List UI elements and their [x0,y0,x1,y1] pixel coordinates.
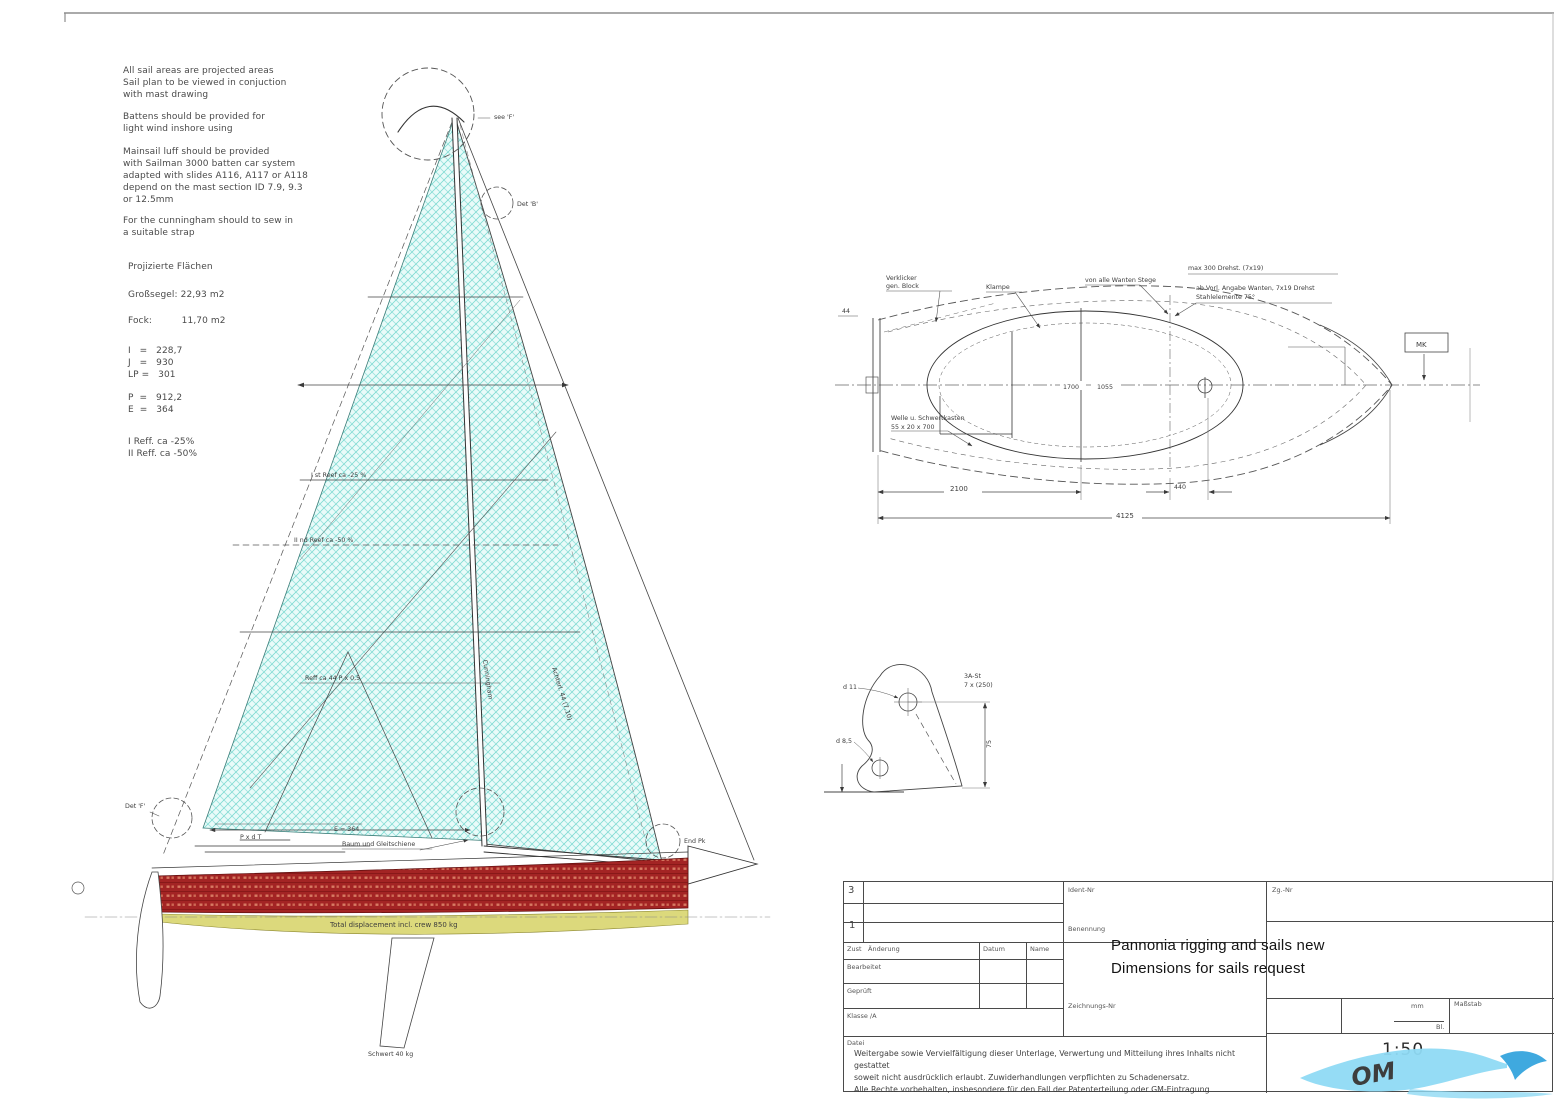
callout-drehst: max 300 Drehst. (7x19) [1188,265,1263,272]
notes-block-3: Mainsail luff should be provided with Sa… [123,147,403,206]
name-label: Name [1030,945,1049,953]
bracket-note-1: 3A-St [964,673,981,680]
notes-block-1: All sail areas are projected areas Sail … [123,66,393,102]
wave-fin [1500,1051,1547,1080]
keel-label: Schwert 40 kg [368,1051,413,1058]
drawing-sheet: see 'F' Det 'B' Det 'F' End Pk I st Reef… [0,0,1560,1103]
datei-label: Datei [847,1039,864,1047]
det-f-label: Det 'F' [125,803,146,810]
deck-plan-top-view: Verklicker gen. Block Klampe von alle Wa… [835,265,1480,524]
notes-block-4: For the cunningham should to sew in a su… [123,216,393,240]
bracket-note-2: 7 x (250) [964,682,993,689]
drawing-title-line2: Dimensions for sails request [1111,958,1441,981]
areas-mainsail: Großsegel: 22,93 m2 [128,290,225,302]
dim-1700: 1700 [1063,384,1079,391]
callout-gen-block: gen. Block [886,283,919,290]
hull-red-band [156,858,688,913]
bow-cone [688,846,757,884]
end-pk-label: End Pk [684,838,706,845]
callout-vorl-1: ab Vorl. Angabe Wanten, 7x19 Drehst [1196,285,1315,292]
dim-440: 440 [1174,484,1186,491]
wave-tail [1407,1089,1553,1099]
callout-vorl-2: Stahlelemente 75° [1196,293,1255,301]
wave-swoosh [1300,1048,1507,1091]
callout-schwertkasten-1: Welle u. Schwertkasten [891,415,965,422]
rev-marker-1: 1 [849,920,855,931]
disclaimer-text: Weitergabe sowie Vervielfältigung dieser… [854,1048,1259,1096]
main-sail [456,120,662,862]
det-b-circle [481,187,513,219]
reef2-label: II nd Reef ca -50 % [294,537,353,544]
benennung-label: Benennung [1068,925,1105,933]
areas-jib: Fock: 11,70 m2 [128,316,226,328]
aenderung-label: Änderung [868,945,900,953]
masthead-note: see 'F' [494,114,514,121]
dim-2100: 2100 [950,485,968,493]
areas-reefs: I Reff. ca -25% II Reff. ca -50% [128,437,197,461]
bearbeitet-label: Bearbeitet [847,963,881,971]
displacement-label: Total displacement incl. crew 850 kg [329,921,458,929]
dim-total: 4125 [1116,512,1134,520]
drawing-title-line1: Pannonia rigging and sails new [1111,935,1441,958]
massstab-label: Maßstab [1454,1000,1482,1008]
bracket-height: 75 [986,740,993,748]
drawing-title: Pannonia rigging and sails new Dimension… [1111,935,1441,980]
boom-label: Baum und Gleitschiene [342,841,415,848]
boom-dim2: E = 364 [334,826,359,833]
reef3-label: Reff ca 44 P x 0,5 [305,675,360,682]
notes-block-2: Battens should be provided for light win… [123,112,393,136]
callout-schwertkasten-2: 55 x 20 x 700 [891,424,935,431]
watermark-wave: OM [1295,1028,1555,1102]
ident-nr-label: Ident-Nr [1068,886,1095,894]
callout-wanten: von alle Wanten Stege [1085,277,1156,284]
rev-marker-3: 3 [848,885,854,896]
mm-label: mm [1411,1002,1424,1010]
zeichnungs-nr-label: Zeichnungs-Nr [1068,1002,1116,1010]
klasse-label: Klasse /A [847,1012,877,1020]
areas-title: Projizierte Flächen [128,262,213,274]
dim-1055: 1055 [1097,384,1113,391]
zust-label: Zust [847,945,862,953]
datum-label: Datum [983,945,1005,953]
boom-dim1: P x d T [240,834,262,841]
bracket-d11: d 11 [843,684,857,691]
reef1-label: I st Reef ca -25 % [311,472,366,479]
bracket-detail: 3A-St 7 x (250) d 11 d 8,5 75 [824,664,993,792]
bracket-plate [857,664,962,792]
rudder [136,872,163,1008]
areas-main-dims: P = 912,2 E = 364 [128,393,182,417]
geprueft-label: Geprüft [847,987,872,995]
left-dim: 44 [842,308,850,315]
callout-verklicker: Verklicker [886,275,917,282]
bracket-d85: d 8,5 [836,738,852,745]
centerboard [380,938,434,1048]
mk-label: MK [1416,341,1427,349]
areas-foretriangle-dims: I = 228,7 J = 930 LP = 301 [128,346,182,382]
callout-klampe: Klampe [986,284,1010,291]
det-b-label: Det 'B' [517,201,538,208]
zg-nr-label: Zg.-Nr [1272,886,1293,894]
